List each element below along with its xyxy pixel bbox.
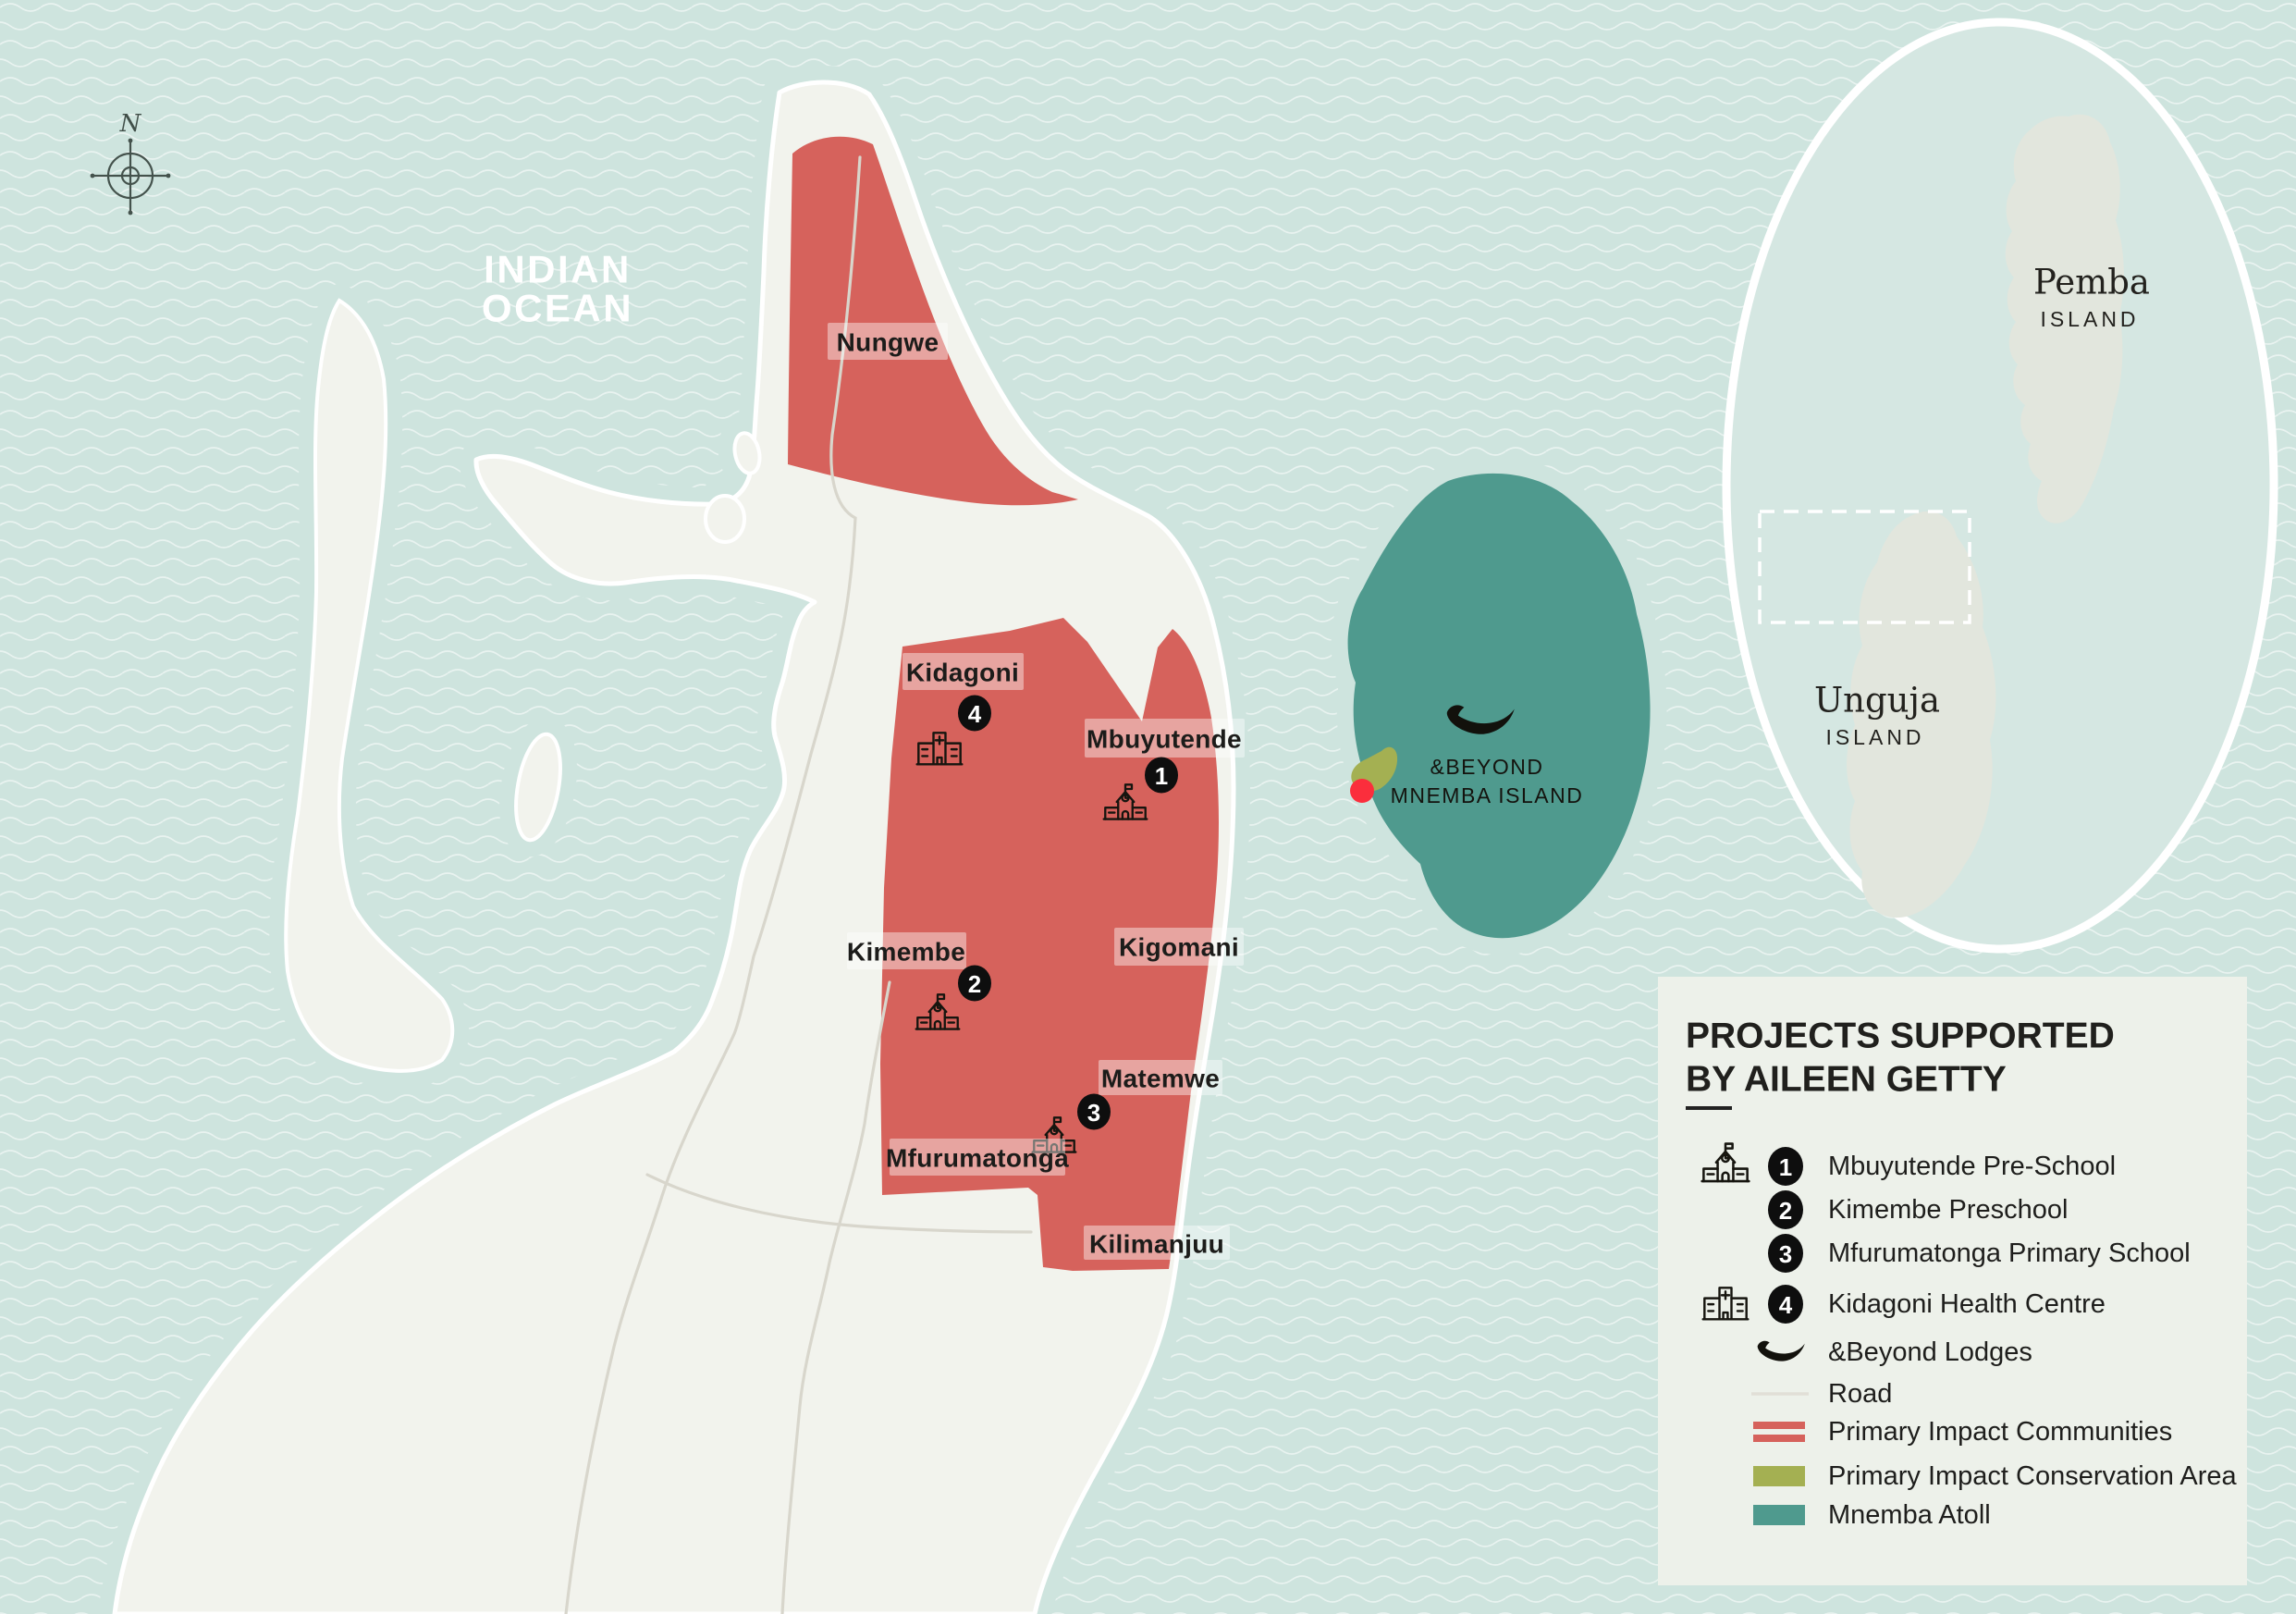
map-marker-2-number: 2: [968, 970, 981, 998]
inset-map: Pemba ISLAND Unguja ISLAND: [1726, 22, 2274, 949]
islet: [706, 496, 744, 542]
unguja-label: Unguja: [1814, 681, 1940, 721]
place-label-kimembe: Kimembe: [847, 938, 965, 967]
legend-item-label: Kimembe Preschool: [1828, 1195, 2069, 1225]
legend-item-label: &Beyond Lodges: [1828, 1337, 2032, 1367]
map-canvas: &BEYOND MNEMBA ISLAND N INDIAN OCEAN Pem…: [0, 0, 2296, 1614]
legend: PROJECTS SUPPORTED BY AILEEN GETTY 1 Mbu…: [1658, 977, 2247, 1585]
place-label-kigomani: Kigomani: [1119, 933, 1239, 962]
mnemba-label-line1: &BEYOND: [1430, 755, 1544, 779]
place-label-mbuyutende: Mbuyutende: [1087, 725, 1242, 754]
pemba-label: Pemba: [2033, 263, 2150, 302]
legend-item-label: Kidagoni Health Centre: [1828, 1289, 2106, 1319]
unguja-sublabel: ISLAND: [1825, 725, 1924, 749]
map-marker-3-number: 3: [1087, 1099, 1100, 1127]
legend-title-line1: PROJECTS SUPPORTED: [1686, 1016, 2115, 1056]
legend-marker-3-number: 3: [1779, 1240, 1792, 1268]
place-label-kilimanjuu: Kilimanjuu: [1089, 1230, 1224, 1259]
map-marker-1-number: 1: [1155, 762, 1168, 790]
legend-item-label: Mbuyutende Pre-School: [1828, 1152, 2116, 1181]
communities-swatch: [1753, 1422, 1805, 1429]
atoll-swatch: [1753, 1505, 1805, 1525]
inset-oval: [1726, 22, 2274, 949]
legend-marker-2-number: 2: [1779, 1197, 1792, 1225]
map-marker-4-number: 4: [968, 700, 982, 728]
lodge-marker-dot: [1350, 779, 1374, 803]
legend-item-label: Primary Impact Communities: [1828, 1417, 2172, 1447]
place-label-mfurumatonga: Mfurumatonga: [886, 1144, 1069, 1173]
ocean-label-line1: INDIAN: [484, 248, 632, 291]
legend-item-label: Primary Impact Conservation Area: [1828, 1461, 2237, 1491]
place-label-kidagoni: Kidagoni: [906, 659, 1019, 687]
legend-marker-4-number: 4: [1779, 1291, 1793, 1319]
ocean-label: INDIAN OCEAN: [482, 248, 633, 330]
legend-item-label: Road: [1828, 1379, 1892, 1409]
legend-title-line2: BY AILEEN GETTY: [1686, 1060, 2007, 1100]
pemba-sublabel: ISLAND: [2040, 307, 2139, 331]
legend-title-underline: [1686, 1106, 1732, 1110]
place-label-matemwe: Matemwe: [1101, 1065, 1220, 1093]
place-label-nungwe: Nungwe: [837, 328, 939, 357]
legend-item-label: Mfurumatonga Primary School: [1828, 1238, 2191, 1268]
legend-marker-1-number: 1: [1779, 1153, 1792, 1181]
conservation-swatch: [1753, 1466, 1805, 1486]
ocean-label-line2: OCEAN: [482, 287, 633, 330]
legend-item-label: Mnemba Atoll: [1828, 1500, 1991, 1530]
mnemba-label-line2: MNEMBA ISLAND: [1391, 783, 1584, 807]
communities-swatch: [1753, 1435, 1805, 1442]
compass-north-label: N: [119, 110, 142, 138]
